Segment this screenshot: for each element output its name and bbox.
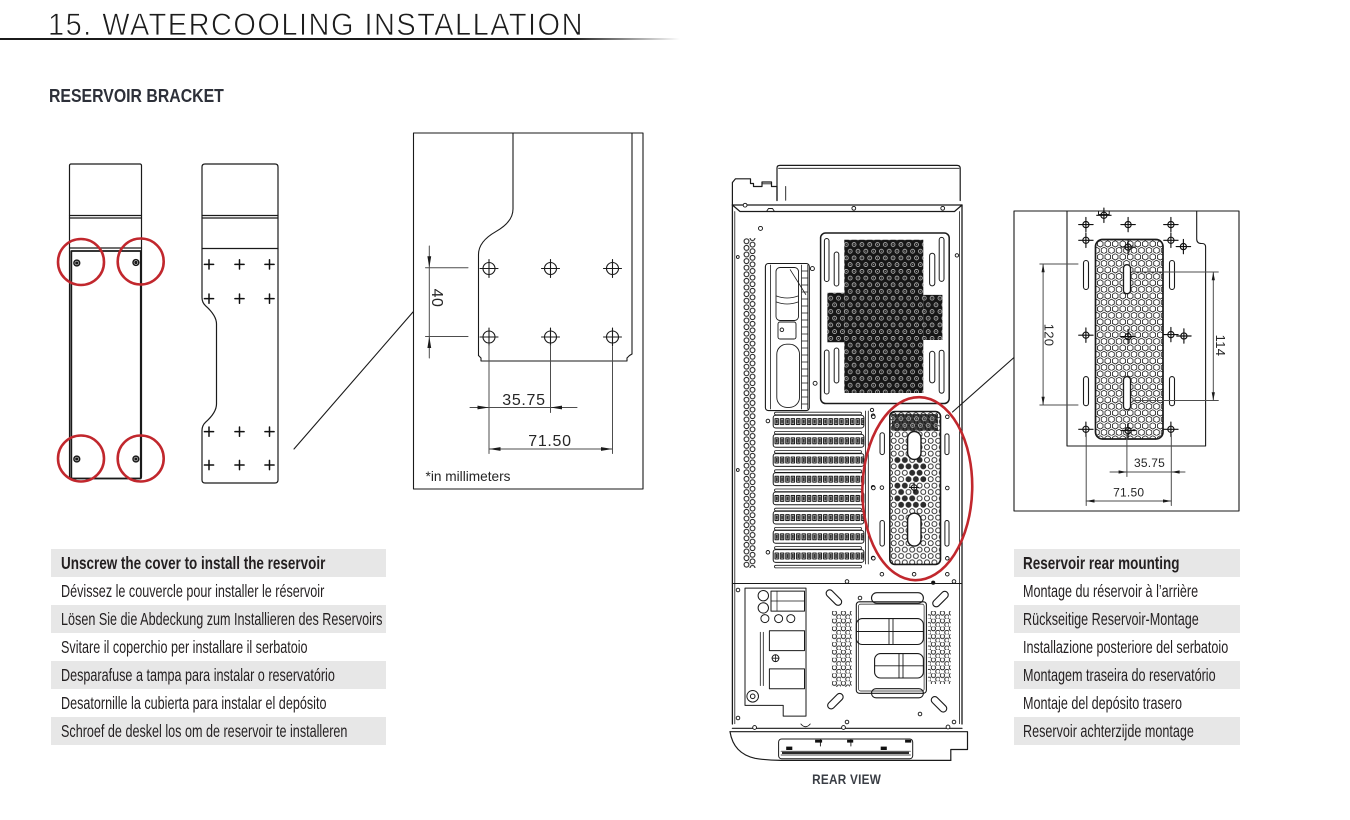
- svg-text:71.50: 71.50: [528, 433, 572, 450]
- svg-text:71.50: 71.50: [1113, 486, 1144, 500]
- svg-text:114: 114: [1213, 335, 1228, 357]
- svg-text:35.75: 35.75: [502, 392, 546, 409]
- svg-text:40: 40: [428, 289, 445, 308]
- svg-text:120: 120: [1042, 324, 1057, 347]
- svg-text:35.75: 35.75: [1134, 456, 1165, 470]
- svg-text:*in millimeters: *in millimeters: [426, 468, 511, 484]
